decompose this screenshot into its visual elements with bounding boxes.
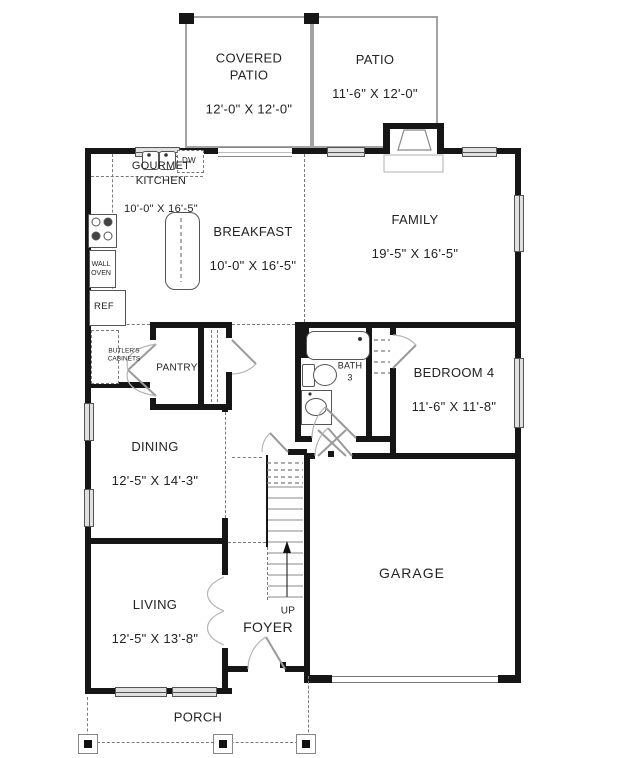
- floor-plan: COVERED PATIO 12'-0" X 12'-0" PATIO 11'-…: [0, 0, 621, 758]
- room-label-garage: GARAGE: [379, 564, 445, 582]
- fireplace-hearth: [384, 130, 443, 172]
- wall-oven-label: WALL OVEN: [91, 260, 111, 278]
- doors-and-details-layer: [0, 0, 621, 758]
- stairs-up-arrow: [283, 541, 291, 597]
- room-label-pantry: PANTRY: [156, 362, 197, 375]
- room-name: DINING: [112, 439, 199, 456]
- room-dims: 12'-0" X 12'-0": [206, 101, 293, 118]
- porch-post: [213, 734, 233, 754]
- room-label-dining: DINING 12'-5" X 14'-3": [112, 422, 199, 506]
- room-label-foyer: FOYER: [243, 618, 293, 636]
- room-name: FAMILY: [372, 212, 459, 229]
- dishwasher-label: DW: [182, 156, 196, 166]
- stairs-up-label: UP: [281, 605, 296, 618]
- room-dims: 12'-5" X 14'-3": [112, 472, 199, 489]
- room-label-family: FAMILY 19'-5" X 16'-5": [372, 195, 459, 279]
- room-label-porch: PORCH: [174, 710, 222, 727]
- room-dims: 19'-5" X 16'-5": [372, 245, 459, 262]
- refrigerator-label: REF: [94, 301, 114, 313]
- room-name: LIVING: [112, 597, 199, 614]
- room-label-bedroom-4: BEDROOM 4 11'-6" X 11'-8": [412, 348, 497, 432]
- porch-post: [78, 734, 98, 754]
- room-name: BEDROOM 4: [412, 365, 497, 382]
- room-label-living: LIVING 12'-5" X 13'-8": [112, 580, 199, 664]
- room-label-patio: PATIO 11'-6" X 12'-0": [332, 35, 418, 119]
- room-dims: 11'-6" X 12'-0": [332, 85, 418, 102]
- room-name: BREAKFAST: [210, 224, 297, 241]
- room-name: PATIO: [332, 52, 418, 69]
- room-dims: 11'-6" X 11'-8": [412, 398, 497, 415]
- room-dims: 12'-5" X 13'-8": [112, 630, 199, 647]
- room-label-breakfast: BREAKFAST 10'-0" X 16'-5": [210, 207, 297, 291]
- stair-treads: [268, 487, 303, 597]
- room-label-bath-3: BATH 3: [338, 360, 363, 383]
- room-name: COVERED PATIO: [206, 50, 293, 84]
- room-dims: 10'-0" X 16'-5": [210, 257, 297, 274]
- room-dims: 10'-0" X 16'-5": [124, 202, 198, 216]
- porch-post: [296, 734, 316, 754]
- room-label-covered-patio: COVERED PATIO 12'-0" X 12'-0": [206, 33, 293, 134]
- butlers-cabinets-label: BUTLER'S CABINETS: [108, 348, 141, 365]
